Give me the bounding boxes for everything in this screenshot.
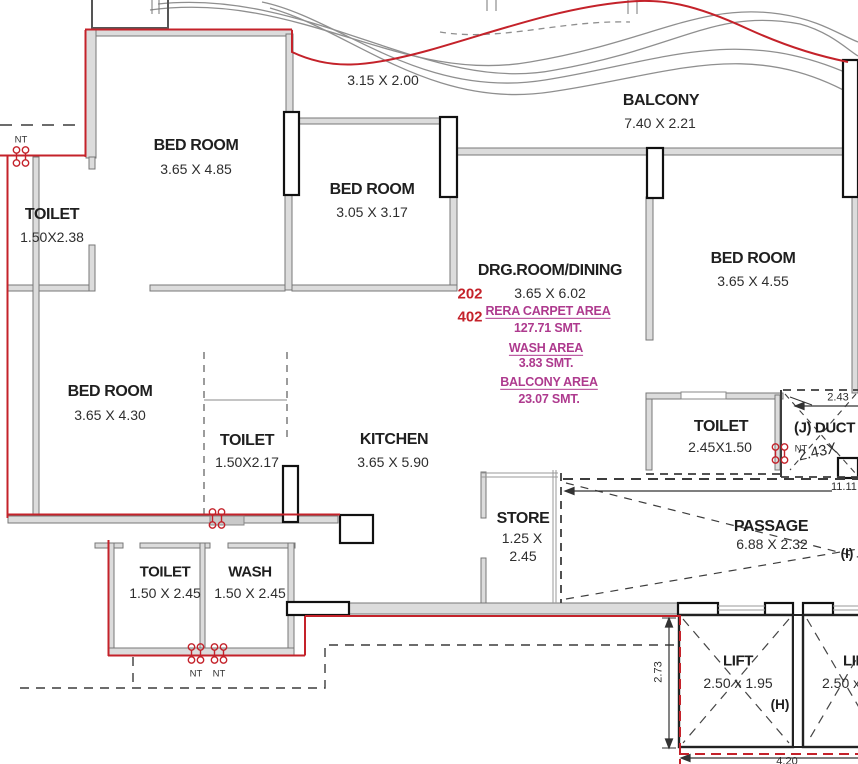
bedroom1-dim: 3.65 X 4.85 [160, 161, 232, 177]
bedroom2-name: BED ROOM [330, 181, 415, 199]
lift2-dim: 2.50 x 1.95 [822, 675, 858, 691]
lift2-name: LIFT [843, 653, 858, 670]
lift1-dim: 2.50 x 1.95 [703, 675, 772, 691]
wash-name: WASH [228, 563, 271, 580]
lift-bottom-dim: 4.20 [776, 756, 797, 764]
rera-carpet-area-label: RERA CARPET AREA [485, 304, 610, 318]
nt-label-wash: NT [213, 670, 226, 681]
nt-label-toilet4: NT [190, 670, 203, 681]
nt-label-toilet3: NT [795, 445, 808, 456]
bedroom3-name: BED ROOM [68, 383, 153, 401]
passage-name: PASSAGE [734, 518, 808, 536]
toilet2-dim: 1.50X2.17 [215, 454, 279, 470]
balcony-curves [150, 0, 858, 98]
toilet1-name: TOILET [25, 206, 79, 224]
drg-room-dim: 3.65 X 6.02 [514, 285, 586, 301]
balcony-area-value: 23.07 SMT. [518, 392, 579, 406]
unit-number-402: 402 [457, 308, 482, 325]
store-dim-line2: 2.45 [509, 548, 536, 564]
lift1-tag-h: (H) [771, 697, 790, 713]
unit-number-202: 202 [457, 285, 482, 302]
drg-room-name: DRG.ROOM/DINING [478, 262, 622, 280]
toilet4-name: TOILET [140, 563, 191, 580]
duct-top-dim: 2.43 [827, 392, 848, 405]
nt-label-left: NT [15, 136, 28, 147]
passage-dim: 6.88 X 2.32 [736, 536, 808, 552]
balcony-area-label: BALCONY AREA [500, 375, 598, 389]
thin-lines [204, 400, 858, 610]
duct-name: (J) DUCT [794, 420, 855, 437]
toilet2-name: TOILET [220, 432, 274, 450]
wash-area-value: 3.83 SMT. [519, 356, 573, 370]
lift-side-dim: 2.73 [653, 661, 666, 682]
lift1-name: LIFT [723, 652, 753, 669]
wash-area-label: WASH AREA [509, 341, 583, 355]
wash-dim: 1.50 X 2.45 [214, 585, 286, 601]
toilet4-dim: 1.50 X 2.45 [129, 585, 201, 601]
kitchen-dim: 3.65 X 5.90 [357, 454, 429, 470]
balcony-dim: 7.40 X 2.21 [624, 115, 696, 131]
floor-plan: BED ROOM 3.65 X 4.85 BED ROOM 3.05 X 3.1… [0, 0, 858, 764]
toilet1-dim: 1.50X2.38 [20, 229, 84, 245]
store-dim-line1: 1.25 X [502, 530, 542, 546]
balcony-name: BALCONY [623, 92, 699, 110]
passage-tag-i: (I) [841, 546, 854, 562]
bedroom2-dim: 3.05 X 3.17 [336, 204, 408, 220]
walls [8, 30, 858, 655]
bedroom3-dim: 3.65 X 4.30 [74, 407, 146, 423]
balcony-small-dim: 3.15 X 2.00 [347, 72, 419, 88]
bedroom4-dim: 3.65 X 4.55 [717, 273, 789, 289]
pillars [92, 0, 858, 747]
rera-carpet-area-value: 127.71 SMT. [514, 321, 582, 335]
passage-total-dim: 11.11 [831, 481, 857, 493]
toilet3-dim: 2.45X1.50 [688, 439, 752, 455]
bedroom1-name: BED ROOM [154, 137, 239, 155]
toilet3-name: TOILET [694, 418, 748, 436]
store-name: STORE [497, 510, 550, 528]
kitchen-name: KITCHEN [360, 431, 428, 449]
bedroom4-name: BED ROOM [711, 250, 796, 268]
